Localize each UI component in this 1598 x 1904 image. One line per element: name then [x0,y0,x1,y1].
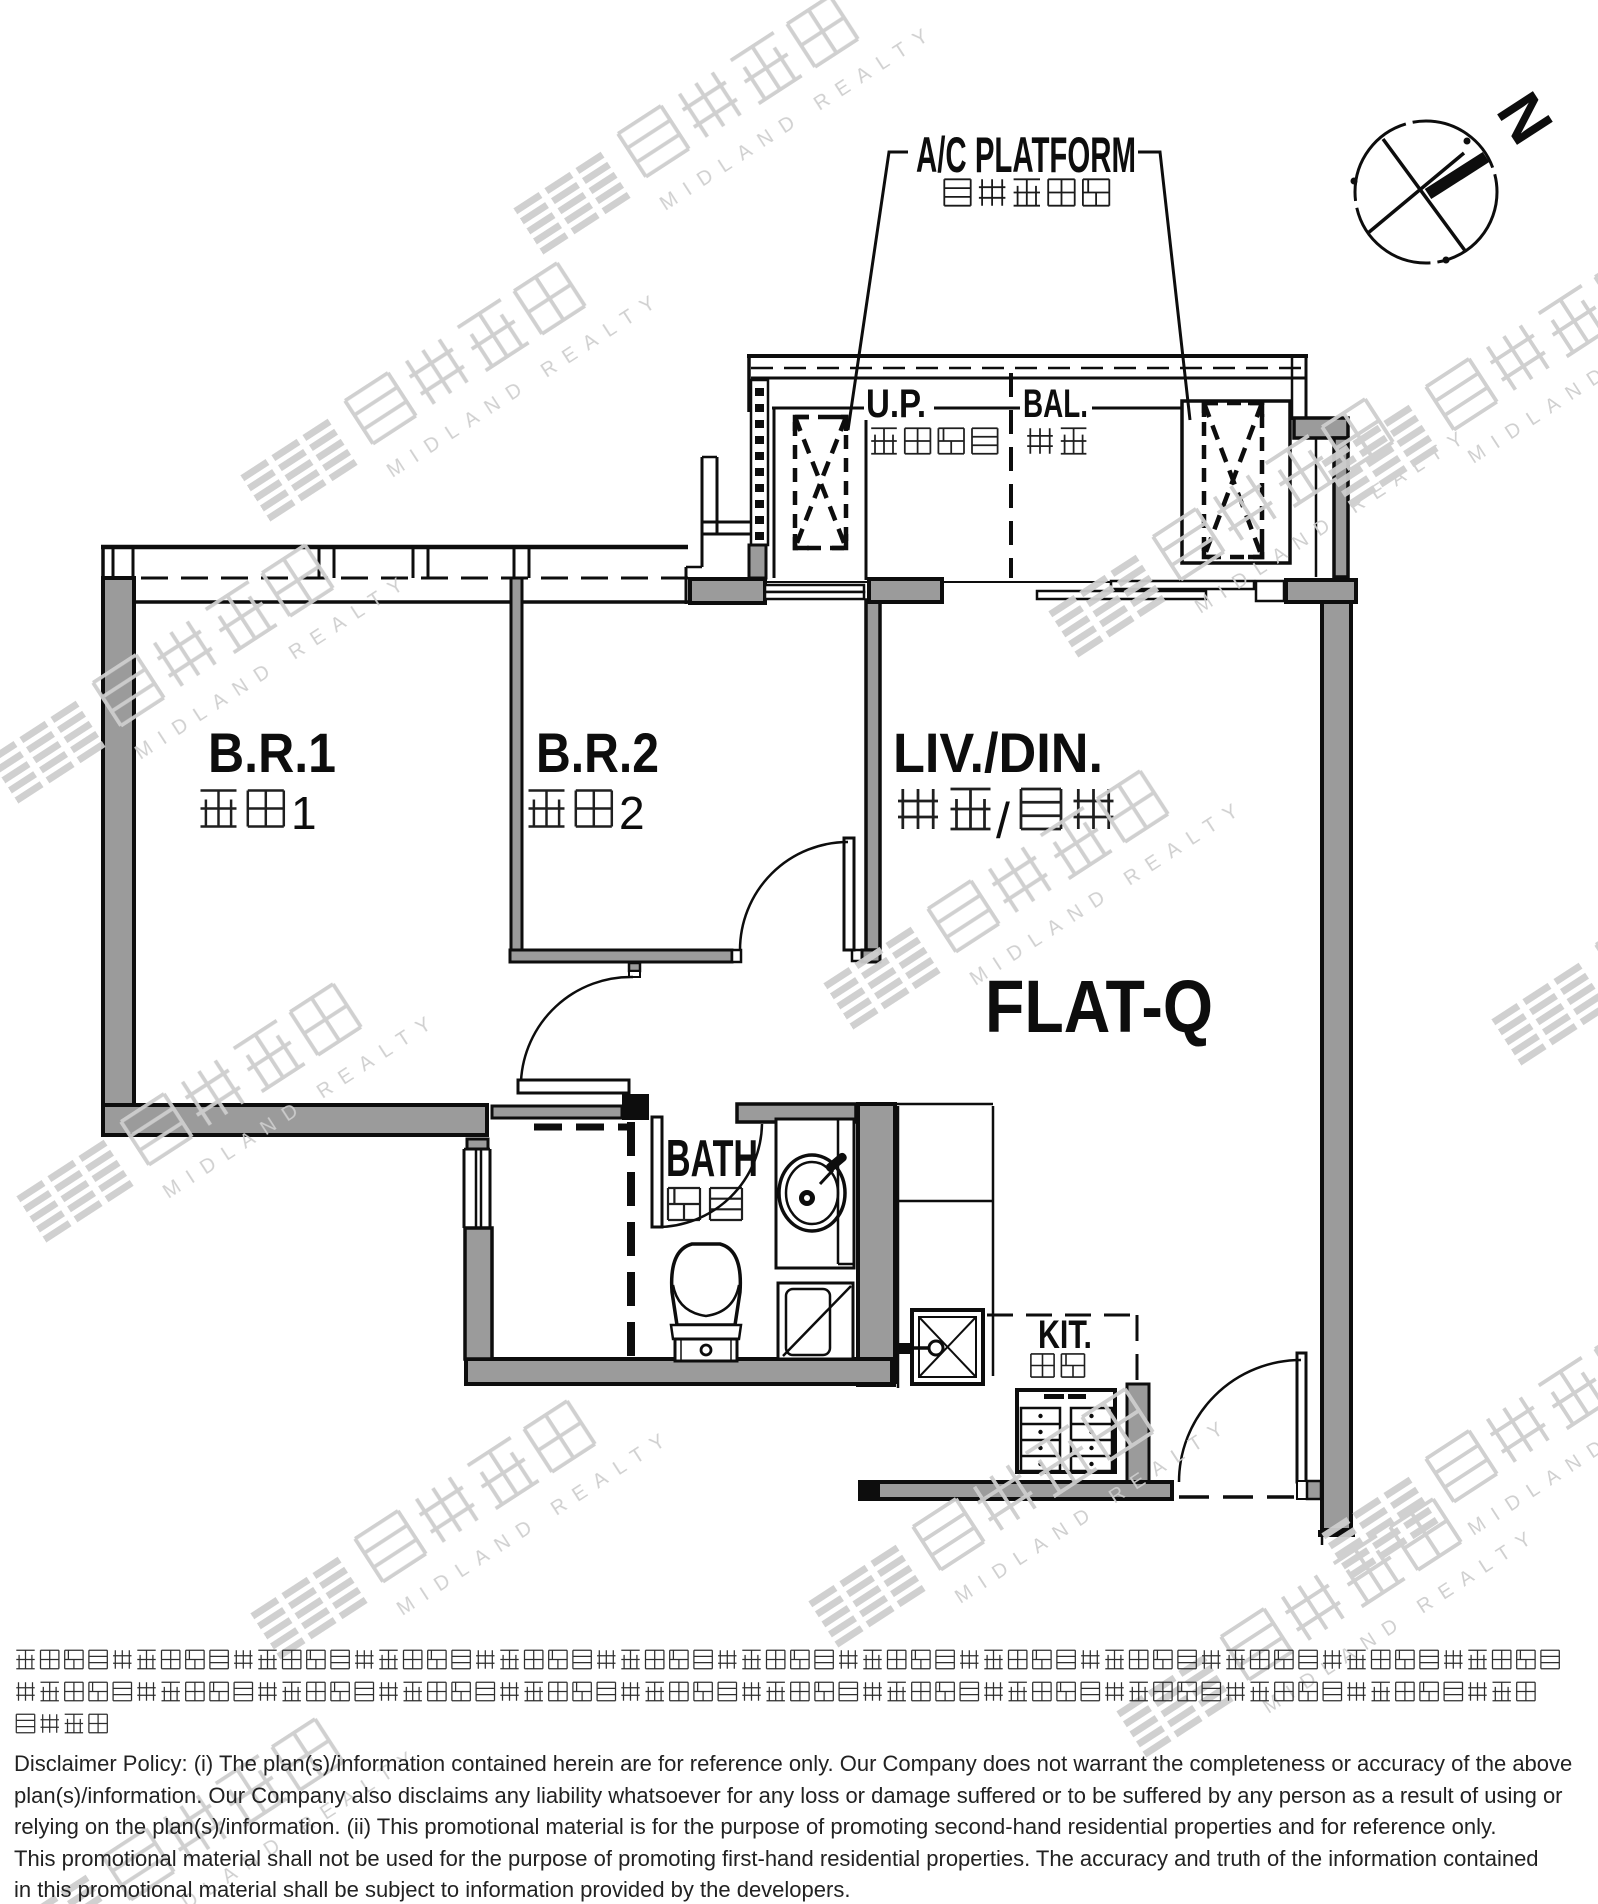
svg-text:U.P.: U.P. [866,382,926,426]
svg-text:BAL.: BAL. [1023,382,1088,426]
svg-text:LIV./DIN.: LIV./DIN. [893,721,1103,784]
svg-text:KIT.: KIT. [1038,1313,1092,1357]
svg-text:A/C PLATFORM: A/C PLATFORM [916,127,1136,183]
svg-text:B.R.2: B.R.2 [536,721,659,784]
svg-text:/: / [996,793,1010,849]
svg-text:B.R.1: B.R.1 [208,721,336,784]
svg-text:1: 1 [291,787,317,839]
svg-text:FLAT-Q: FLAT-Q [985,965,1213,1048]
svg-text:2: 2 [619,787,645,839]
svg-text:N: N [1483,81,1565,156]
